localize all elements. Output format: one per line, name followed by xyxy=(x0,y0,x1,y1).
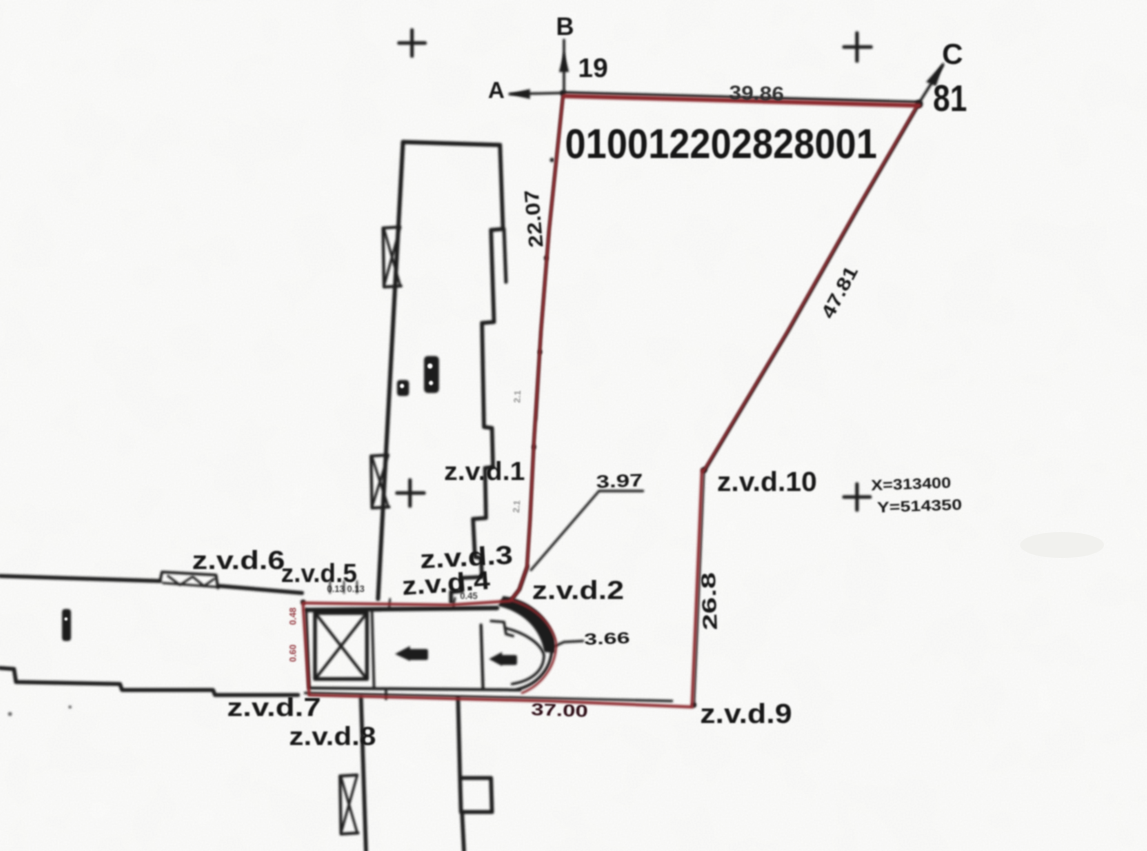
svg-text:39.86: 39.86 xyxy=(729,82,785,105)
svg-text:X=313400: X=313400 xyxy=(871,475,952,495)
svg-text:2.1: 2.1 xyxy=(511,500,522,513)
svg-text:z.v.d.1: z.v.d.1 xyxy=(444,456,525,486)
svg-text:2.1: 2.1 xyxy=(512,390,523,403)
svg-text:z.v.d.9: z.v.d.9 xyxy=(700,698,792,729)
svg-text:B: B xyxy=(556,13,574,41)
svg-text:0.13 0.13: 0.13 0.13 xyxy=(327,584,365,594)
svg-text:A: A xyxy=(488,77,505,103)
svg-text:3.66: 3.66 xyxy=(584,630,631,649)
svg-text:37.00: 37.00 xyxy=(531,700,589,721)
svg-text:z.v.d.10: z.v.d.10 xyxy=(717,466,817,497)
svg-text:z.v.d.6: z.v.d.6 xyxy=(192,545,285,575)
svg-text:3.97: 3.97 xyxy=(596,470,644,492)
svg-text:z.v.d.4: z.v.d.4 xyxy=(401,565,491,601)
svg-text:0.48: 0.48 xyxy=(288,607,298,625)
svg-text:z.v.d.2: z.v.d.2 xyxy=(532,575,624,605)
svg-text:19: 19 xyxy=(578,53,608,83)
svg-text:Y=514350: Y=514350 xyxy=(877,497,963,517)
svg-text:C: C xyxy=(942,39,963,71)
svg-text:81: 81 xyxy=(933,78,967,119)
svg-text:26.8: 26.8 xyxy=(698,572,722,631)
svg-text:0.45: 0.45 xyxy=(460,591,478,601)
svg-text:z.v.d.7: z.v.d.7 xyxy=(227,692,321,722)
svg-text:010012202828001: 010012202828001 xyxy=(565,120,877,167)
svg-text:z.v.d.8: z.v.d.8 xyxy=(289,721,376,751)
svg-text:0.60: 0.60 xyxy=(288,644,298,662)
